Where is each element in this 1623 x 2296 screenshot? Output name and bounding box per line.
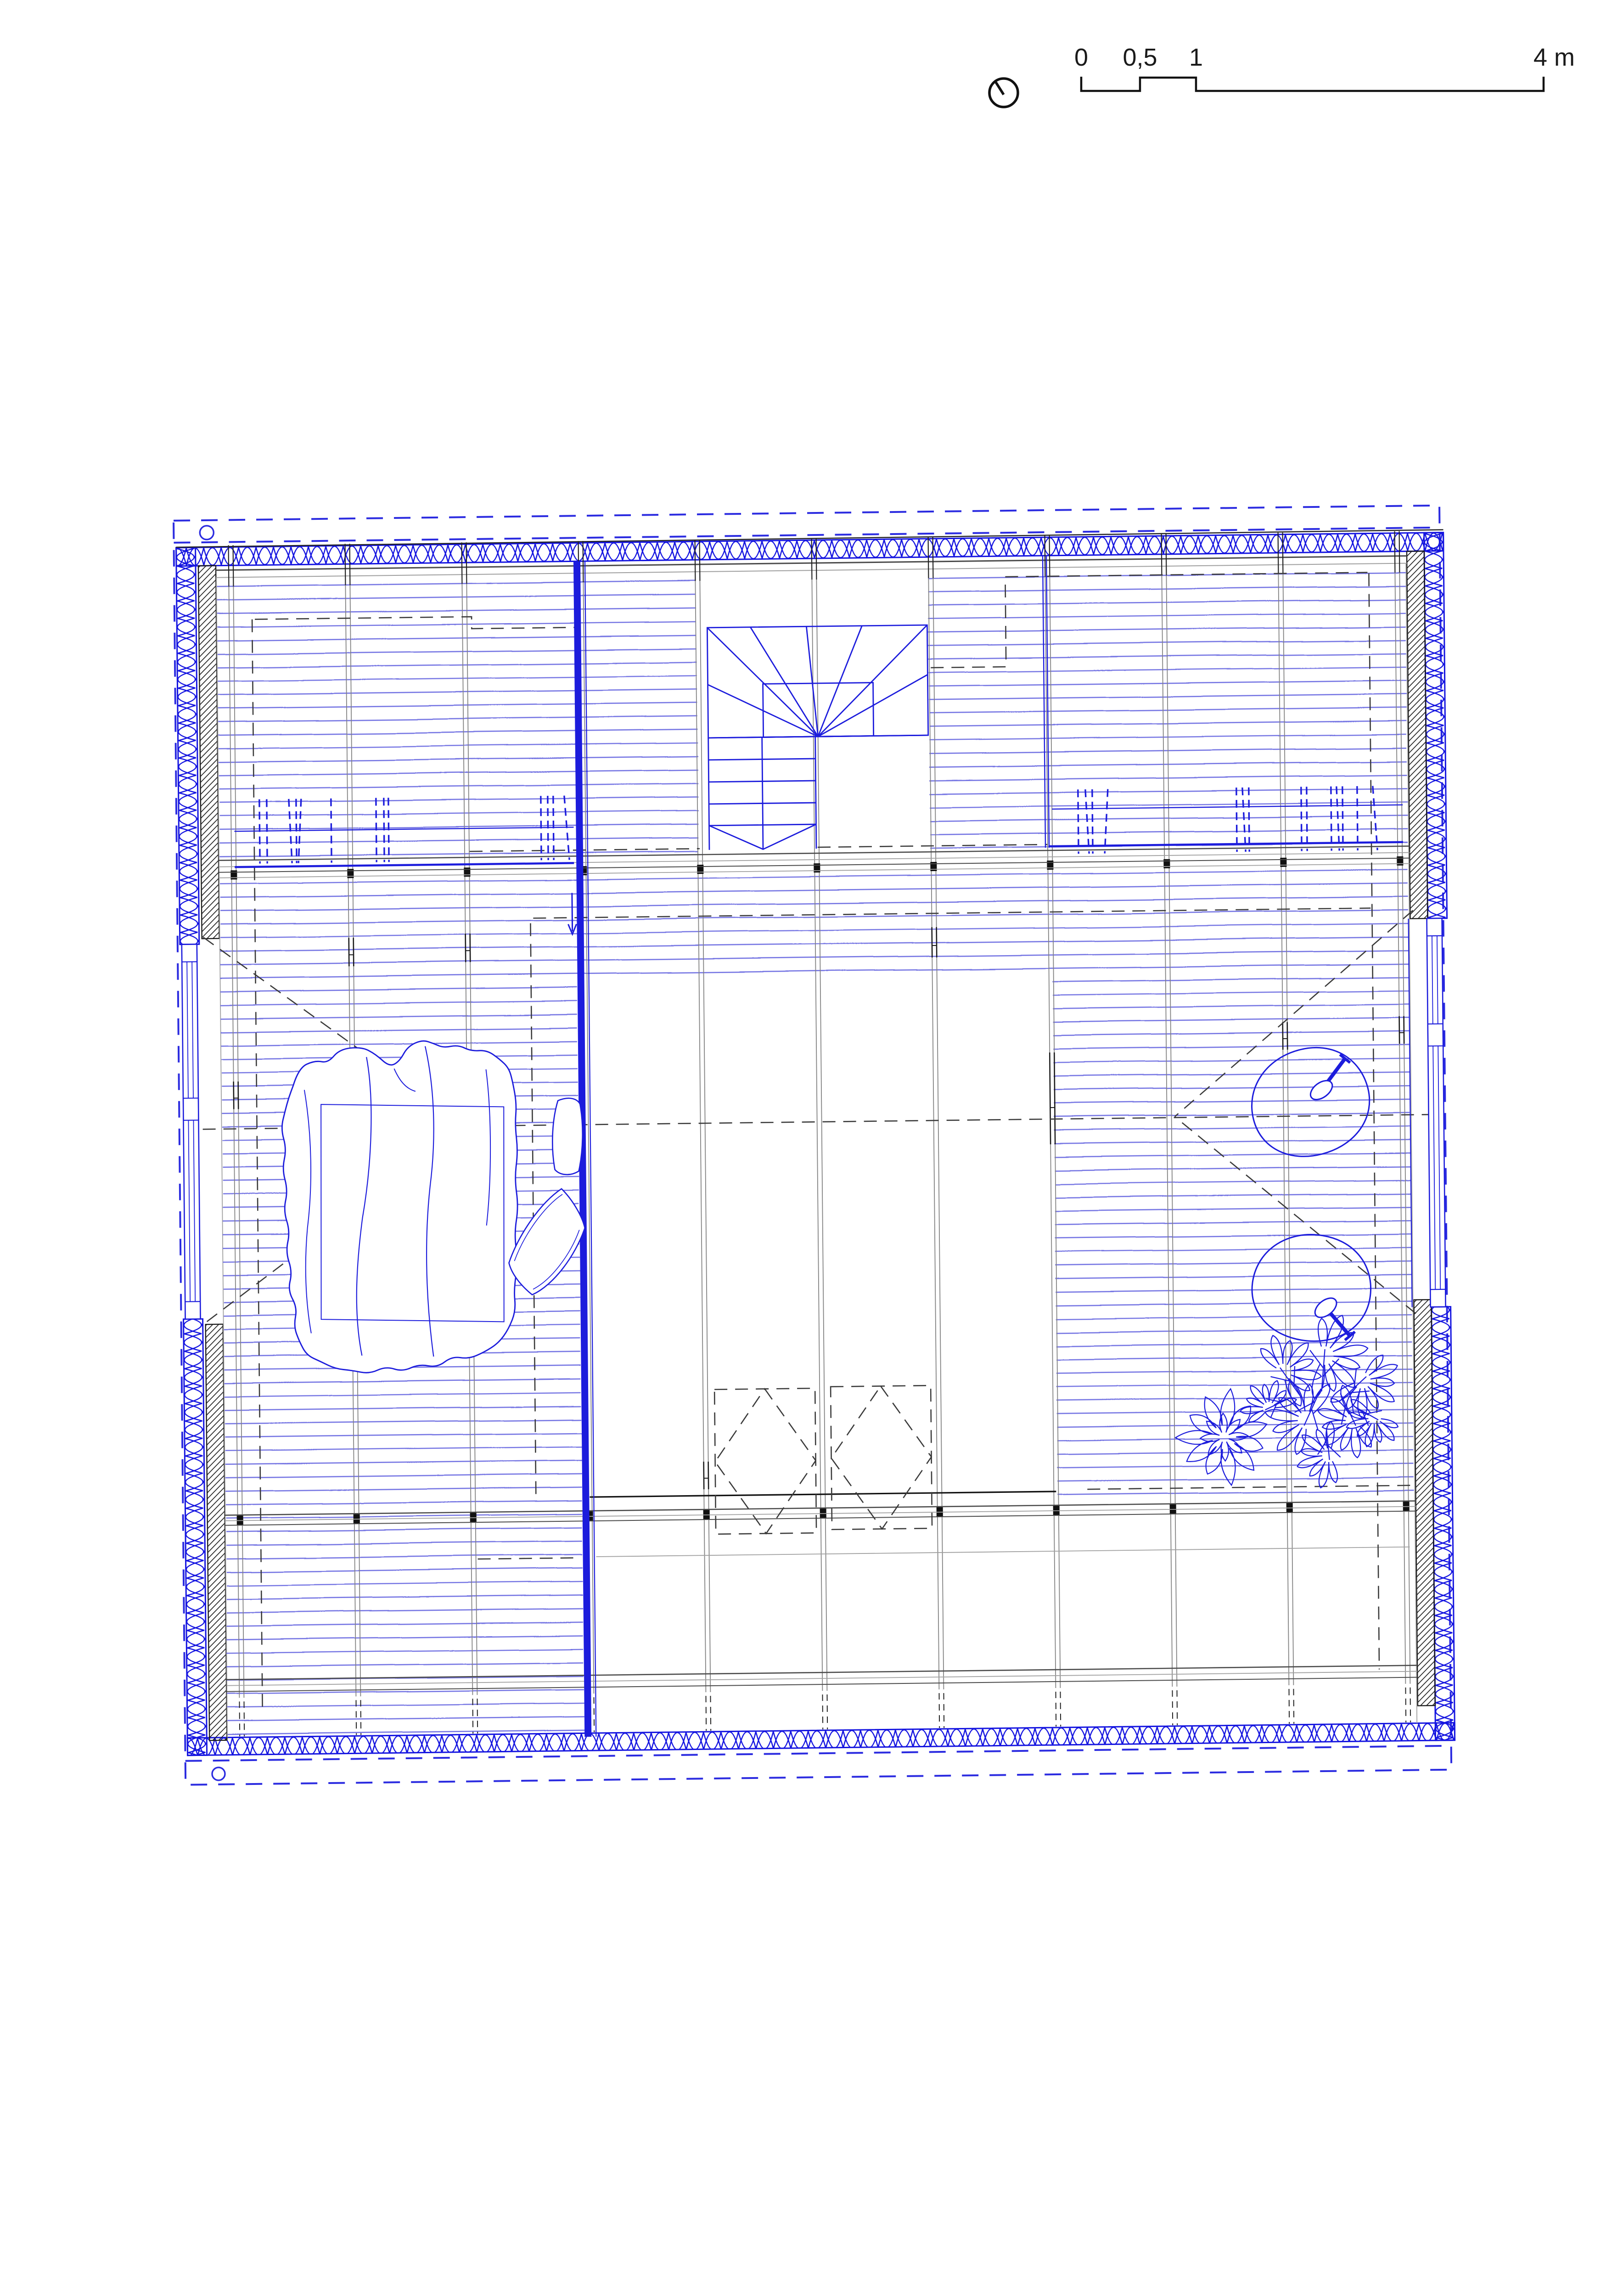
svg-text:1: 1 bbox=[1189, 44, 1203, 71]
svg-text:4 m: 4 m bbox=[1533, 44, 1575, 71]
svg-text:0,5: 0,5 bbox=[1123, 44, 1157, 71]
svg-text:0: 0 bbox=[1074, 44, 1088, 71]
